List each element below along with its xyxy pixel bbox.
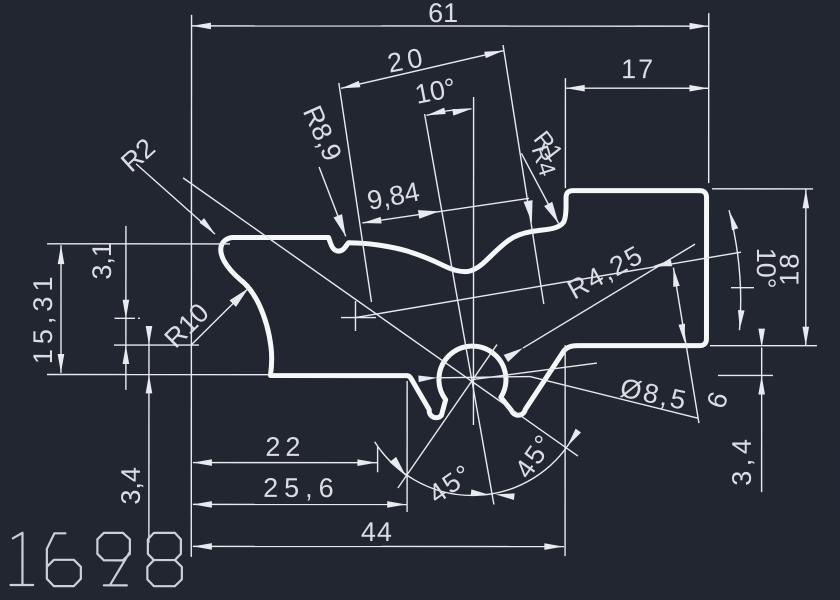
- svg-text:10°: 10°: [751, 248, 781, 289]
- svg-text:44: 44: [361, 517, 393, 547]
- svg-text:3,4: 3,4: [727, 435, 757, 486]
- svg-text:3,1: 3,1: [87, 242, 117, 280]
- svg-text:25,6: 25,6: [263, 473, 340, 503]
- svg-text:61: 61: [428, 0, 458, 28]
- svg-text:3,4: 3,4: [116, 467, 146, 505]
- svg-text:22: 22: [265, 432, 305, 462]
- svg-text:15,31: 15,31: [28, 272, 58, 365]
- svg-text:17: 17: [621, 54, 655, 84]
